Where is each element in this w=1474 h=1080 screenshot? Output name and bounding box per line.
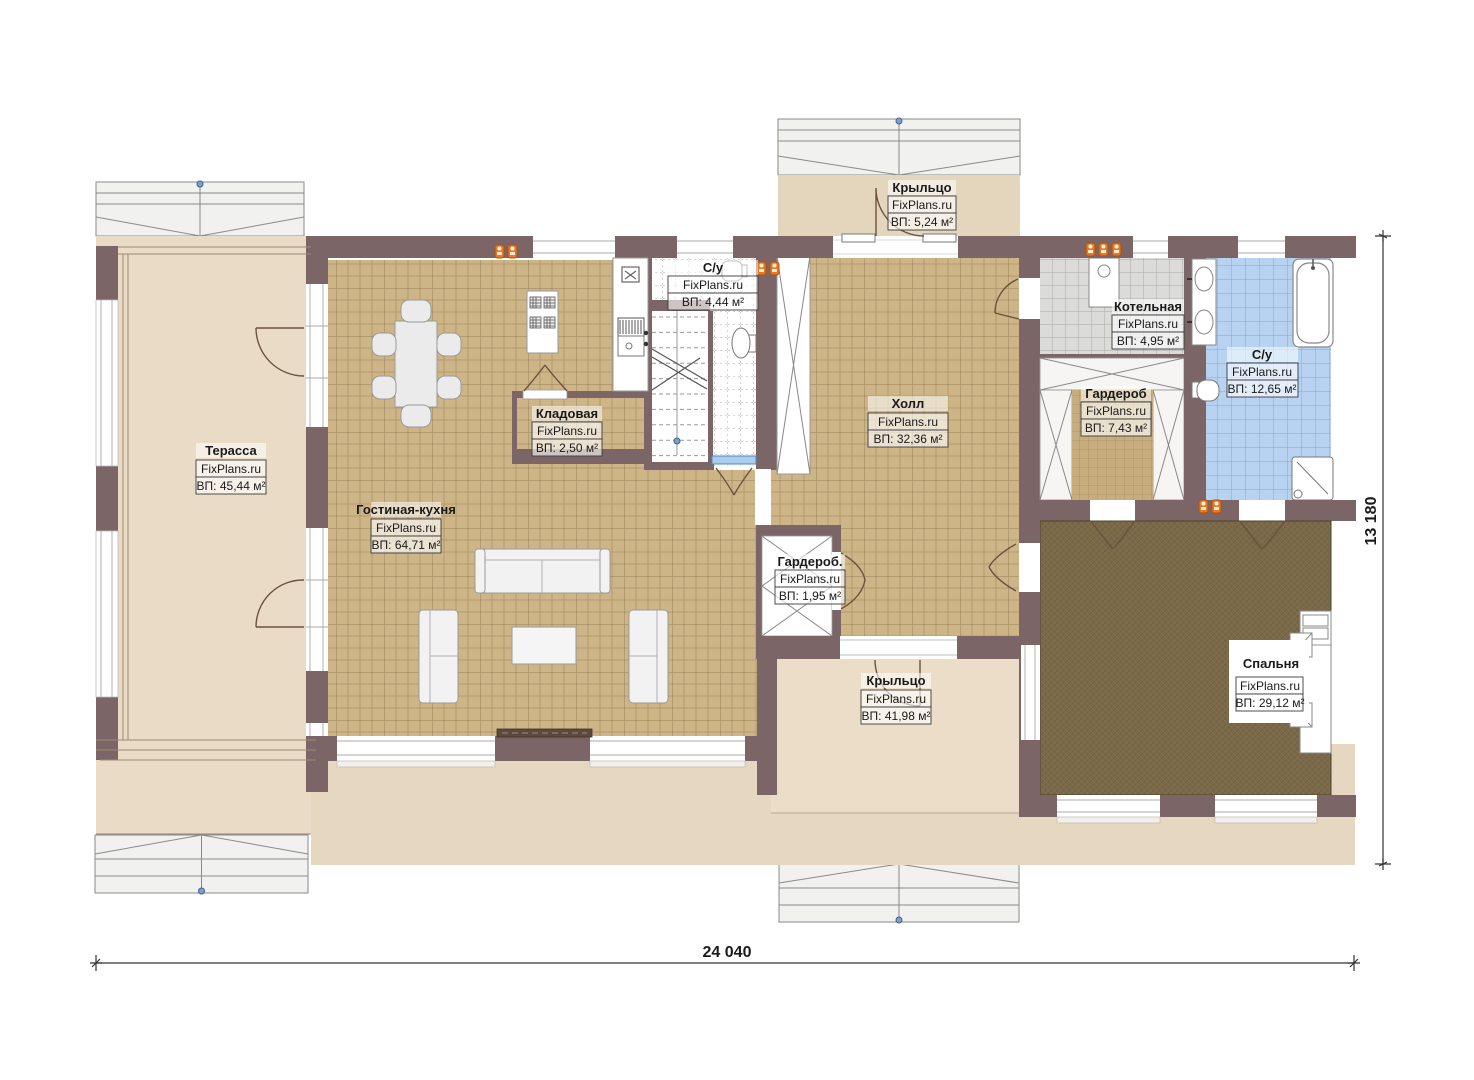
svg-text:FixPlans.ru: FixPlans.ru xyxy=(683,278,743,292)
svg-text:FixPlans.ru: FixPlans.ru xyxy=(201,462,261,476)
svg-text:С/у: С/у xyxy=(1252,347,1273,362)
svg-text:ВП: 41,98 м²: ВП: 41,98 м² xyxy=(862,709,931,723)
svg-text:ВП: 4,44 м²: ВП: 4,44 м² xyxy=(682,295,744,309)
svg-text:ВП: 32,36 м²: ВП: 32,36 м² xyxy=(874,432,943,446)
svg-text:Холл: Холл xyxy=(892,396,925,411)
svg-text:ВП: 7,43 м²: ВП: 7,43 м² xyxy=(1085,421,1147,435)
svg-text:13 180: 13 180 xyxy=(1363,496,1380,545)
svg-text:Спальня: Спальня xyxy=(1243,656,1299,671)
svg-text:Крыльцо: Крыльцо xyxy=(866,673,925,688)
svg-text:ВП: 29,12 м²: ВП: 29,12 м² xyxy=(1236,696,1305,710)
svg-text:Гостиная-кухня: Гостиная-кухня xyxy=(356,502,456,517)
svg-text:FixPlans.ru: FixPlans.ru xyxy=(376,521,436,535)
svg-text:FixPlans.ru: FixPlans.ru xyxy=(537,424,597,438)
svg-text:ВП: 64,71 м²: ВП: 64,71 м² xyxy=(372,538,441,552)
svg-text:FixPlans.ru: FixPlans.ru xyxy=(1086,404,1146,418)
svg-text:ВП: 45,44 м²: ВП: 45,44 м² xyxy=(197,479,266,493)
svg-text:ВП: 2,50 м²: ВП: 2,50 м² xyxy=(536,441,598,455)
svg-text:FixPlans.ru: FixPlans.ru xyxy=(1232,365,1292,379)
svg-text:ВП: 4,95 м²: ВП: 4,95 м² xyxy=(1117,334,1179,348)
svg-text:Гардероб.: Гардероб. xyxy=(777,554,842,569)
svg-text:Кладовая: Кладовая xyxy=(536,406,598,421)
svg-text:ВП: 12,65 м²: ВП: 12,65 м² xyxy=(1228,382,1297,396)
svg-text:24 040: 24 040 xyxy=(703,944,752,961)
svg-text:Крыльцо: Крыльцо xyxy=(892,180,951,195)
svg-text:Котельная: Котельная xyxy=(1114,299,1182,314)
svg-text:ВП: 5,24 м²: ВП: 5,24 м² xyxy=(891,215,953,229)
svg-text:FixPlans.ru: FixPlans.ru xyxy=(892,198,952,212)
svg-text:FixPlans.ru: FixPlans.ru xyxy=(866,692,926,706)
svg-text:Терасса: Терасса xyxy=(205,443,257,458)
svg-text:FixPlans.ru: FixPlans.ru xyxy=(1240,679,1300,693)
svg-text:ВП: 1,95 м²: ВП: 1,95 м² xyxy=(779,589,841,603)
svg-text:С/у: С/у xyxy=(703,260,724,275)
svg-text:FixPlans.ru: FixPlans.ru xyxy=(1118,317,1178,331)
svg-text:FixPlans.ru: FixPlans.ru xyxy=(780,572,840,586)
svg-text:Гардероб: Гардероб xyxy=(1085,386,1146,401)
svg-text:FixPlans.ru: FixPlans.ru xyxy=(878,415,938,429)
